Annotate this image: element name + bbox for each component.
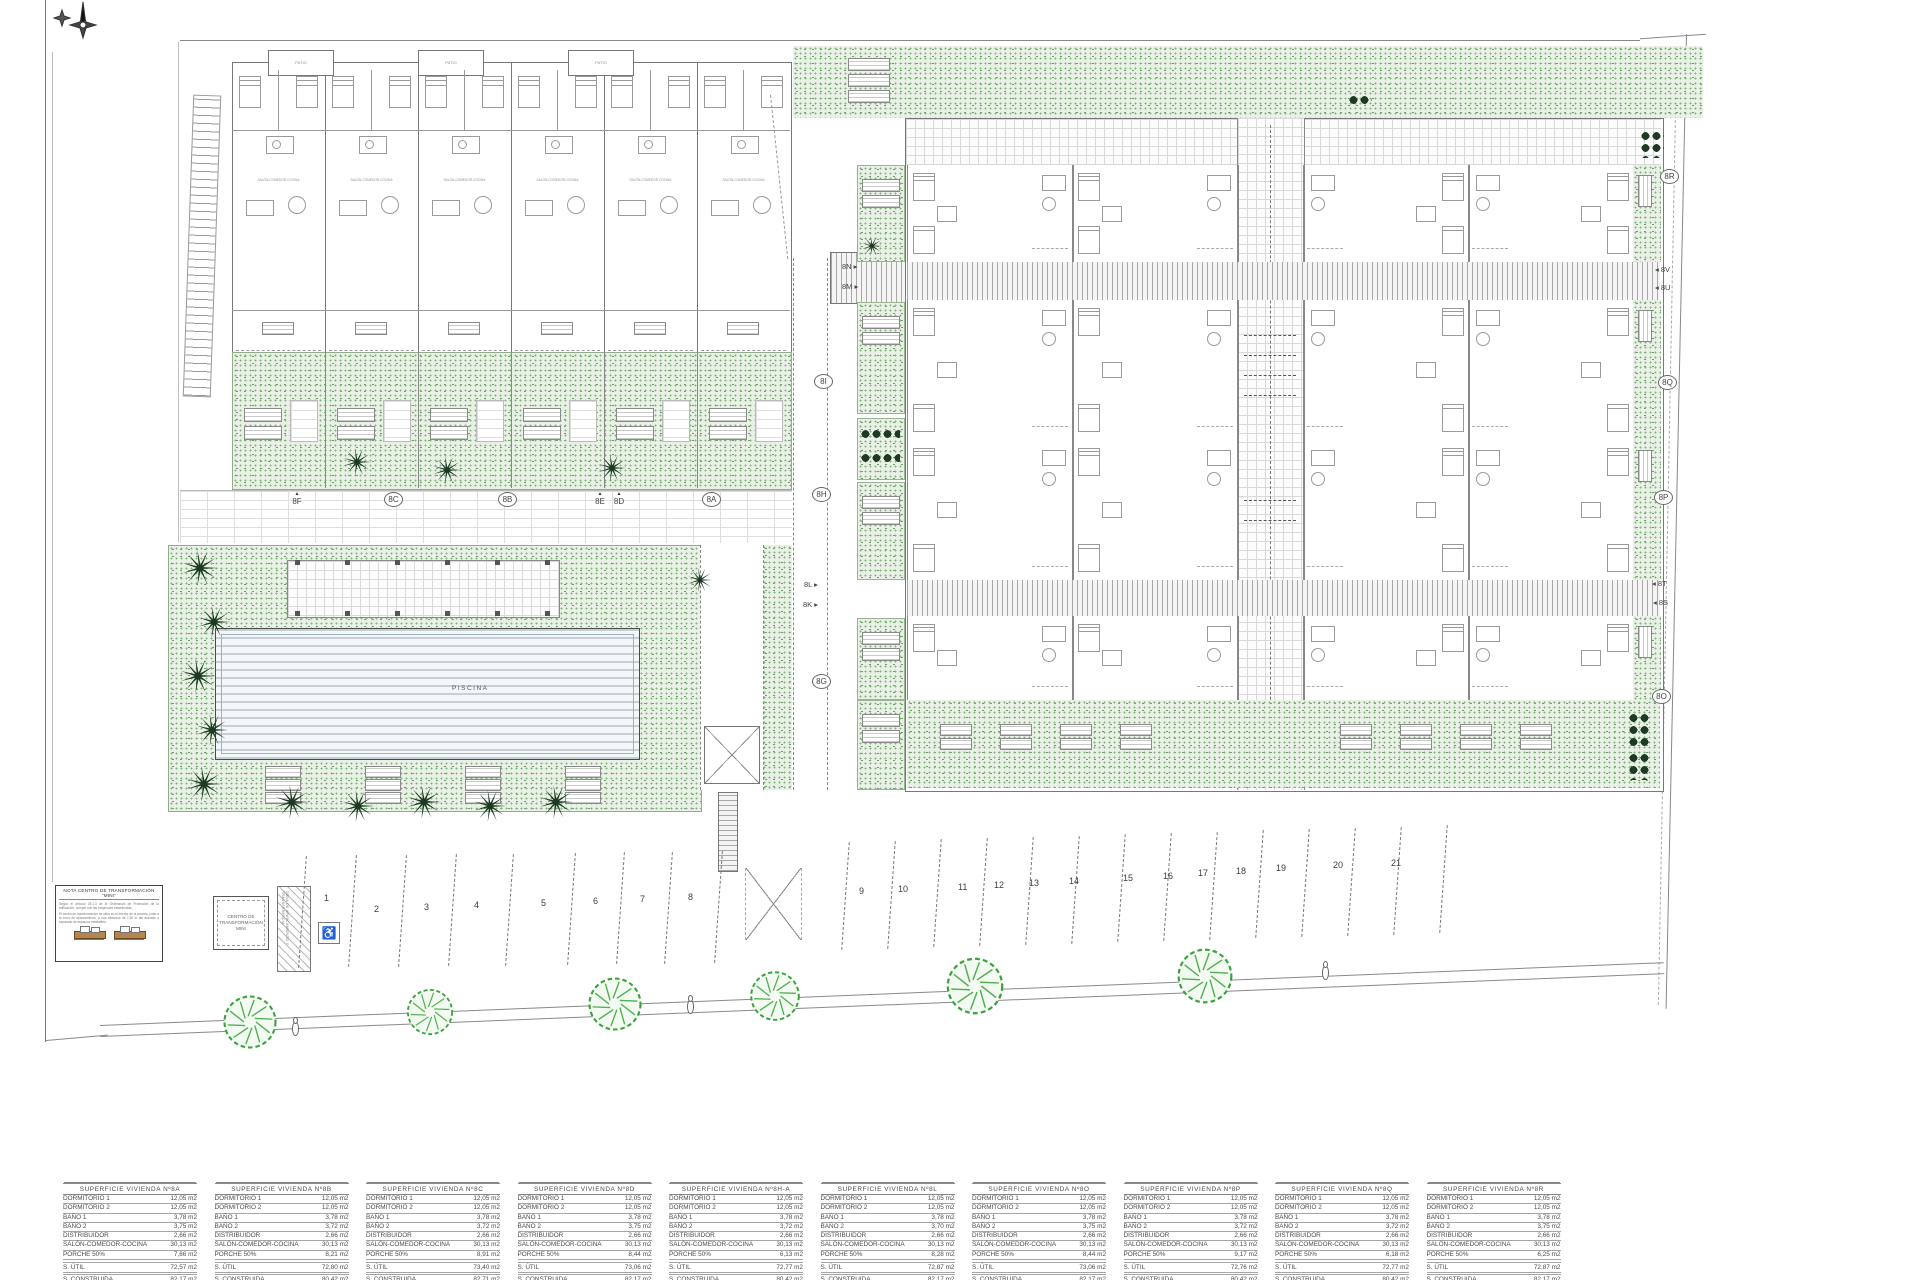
area-table-row: BAÑO 23,72 m2 (669, 1223, 803, 1232)
area-row-label: BAÑO 1 (1427, 1214, 1450, 1222)
area-row-value: 3,72 m2 (780, 1223, 803, 1231)
area-row-label: SALÓN-COMEDOR-COCINA (518, 1241, 602, 1249)
porch-edge (329, 350, 414, 351)
area-row-value: 72,80 m2 (322, 1263, 349, 1272)
area-table-row: S. ÚTIL72,57 m2 (63, 1262, 197, 1273)
living-room-label: SALÓN-COMEDOR-COCINA (238, 168, 319, 176)
garden-lounger (616, 426, 654, 440)
unit-label-8G: 8G (812, 674, 831, 689)
porch-lounger (448, 322, 480, 335)
bathroom (937, 502, 957, 518)
area-table-row: DORMITORIO 112,05 m2 (215, 1195, 349, 1204)
area-row-value: 82,17 m2 (625, 1275, 652, 1280)
sofa (1207, 450, 1231, 466)
area-row-value: 12,05 m2 (1231, 1195, 1258, 1203)
porch-wall (418, 310, 511, 311)
central-spine (1237, 118, 1305, 790)
rowhouse-divider (511, 62, 512, 352)
area-table-row: PORCHE 50%8,44 m2 (518, 1251, 652, 1260)
area-row-label: BAÑO 1 (1124, 1214, 1147, 1222)
west-lounger (862, 332, 900, 345)
salon-label: SALÓN-COMEDOR-COCINA (258, 178, 300, 182)
area-row-value: 3,78 m2 (780, 1214, 803, 1222)
parking-divider (1347, 828, 1356, 936)
interior-wall (511, 130, 604, 131)
porch-lounger (634, 322, 666, 335)
parking-divider (933, 840, 942, 948)
area-row-value: 12,05 m2 (776, 1204, 803, 1212)
bed-pillow (913, 451, 935, 456)
area-row-label: DISTRIBUIDOR (972, 1232, 1018, 1240)
boundary-top (180, 40, 1640, 41)
parking-number: 15 (1123, 873, 1133, 883)
street-tree-icon (747, 968, 803, 1024)
bed-pillow (913, 627, 935, 632)
area-row-label: S. CONSTRUIDA (972, 1275, 1022, 1280)
area-row-label: DORMITORIO 2 (215, 1204, 262, 1212)
area-row-value: 3,78 m2 (1386, 1214, 1409, 1222)
right-garden-lounger (1638, 450, 1652, 482)
area-row-label: DORMITORIO 2 (821, 1204, 868, 1212)
ramp (745, 868, 802, 940)
area-table-row: S. CONSTRUIDA82,17 m2 (972, 1274, 1106, 1280)
area-table-row: S. CONSTRUIDA80,42 m2 (669, 1274, 803, 1280)
sofa (1042, 310, 1066, 326)
area-table-row: S. ÚTIL72,87 m2 (1427, 1262, 1561, 1273)
area-table-row: S. CONSTRUIDA80,42 m2 (1275, 1274, 1409, 1280)
area-row-label: S. ÚTIL (366, 1263, 388, 1272)
front-walkway (180, 490, 792, 543)
table (1476, 197, 1490, 211)
salon-label: SALÓN-COMEDOR-COCINA (537, 178, 579, 182)
terrace-edge (1032, 686, 1068, 687)
area-table-row: BAÑO 23,72 m2 (366, 1223, 500, 1232)
area-row-label: SALÓN-COMEDOR-COCINA (1427, 1241, 1511, 1249)
bed-pillow (913, 404, 935, 409)
garden-lounger (337, 408, 375, 422)
area-table-row: PORCHE 50%7,66 m2 (63, 1251, 197, 1260)
area-table-title: SUPERFICIE VIVIENDA Nº8A (63, 1183, 197, 1195)
bedroom-wall (371, 70, 372, 130)
area-row-value: 8,44 m2 (628, 1251, 651, 1259)
south-lounger (1000, 724, 1032, 736)
terrace-edge (1032, 566, 1068, 567)
area-table-row: S. ÚTIL72,77 m2 (1275, 1262, 1409, 1273)
west-lounger (862, 714, 900, 727)
parking-divider (1025, 837, 1034, 945)
spine-section-mark (1244, 355, 1296, 356)
area-table-row: BAÑO 13,78 m2 (1427, 1214, 1561, 1223)
parking-divider (1163, 833, 1172, 941)
area-table-row: BAÑO 23,75 m2 (518, 1223, 652, 1232)
bed-pillow (1607, 311, 1629, 316)
garden-lounger (430, 408, 468, 422)
area-table-row: S. ÚTIL73,06 m2 (518, 1262, 652, 1273)
parking-number: 18 (1236, 866, 1246, 876)
area-row-value: 12,05 m2 (1382, 1195, 1409, 1203)
area-row-value: 82,17 m2 (1079, 1275, 1106, 1280)
area-table-row: PORCHE 50%8,44 m2 (972, 1251, 1106, 1260)
table (1207, 197, 1221, 211)
south-lounger (1400, 738, 1432, 750)
west-lounger (862, 632, 900, 645)
garden-pad (290, 400, 318, 442)
bed-pillow (1078, 311, 1100, 316)
area-row-value: 12,05 m2 (625, 1195, 652, 1203)
garden-pad (383, 400, 411, 442)
area-row-value: 30,13 m2 (928, 1241, 955, 1249)
bed-pillow (1607, 627, 1629, 632)
bedroom-wall (557, 70, 558, 130)
area-table-row: DORMITORIO 112,05 m2 (1427, 1195, 1561, 1204)
area-row-label: DORMITORIO 1 (366, 1195, 413, 1203)
area-row-value: 80,42 m2 (776, 1275, 803, 1280)
west-lounger (862, 730, 900, 743)
area-table-row: DORMITORIO 112,05 m2 (518, 1195, 652, 1204)
parking-number: 19 (1276, 863, 1286, 873)
area-table-row: S. CONSTRUIDA82,71 m2 (366, 1274, 500, 1280)
area-row-value: 72,87 m2 (1534, 1263, 1561, 1272)
south-lounger (1460, 738, 1492, 750)
interior-wall (232, 130, 325, 131)
garden-lounger (337, 426, 375, 440)
rowhouse-divider (325, 62, 326, 352)
area-row-value: 72,57 m2 (170, 1263, 197, 1272)
toilet (272, 140, 281, 149)
terrace-edge (1032, 426, 1068, 427)
area-row-label: S. CONSTRUIDA (821, 1275, 871, 1280)
area-row-value: 3,75 m2 (1083, 1223, 1106, 1231)
bollard-icon (687, 1000, 694, 1014)
area-table: SUPERFICIE VIVIENDA Nº8H-ADORMITORIO 112… (669, 1183, 803, 1280)
unit-label-text: 8D (614, 497, 624, 506)
area-table-row: DORMITORIO 212,05 m2 (1275, 1204, 1409, 1213)
pergola-column (345, 611, 350, 616)
area-row-value: 3,75 m2 (174, 1223, 197, 1231)
boundary-left-inner (52, 52, 53, 882)
unit-label-8O: 8O (1652, 689, 1671, 704)
table (1042, 648, 1056, 662)
bed-pillow (1442, 627, 1464, 632)
area-row-value: 8,21 m2 (325, 1251, 348, 1259)
unit-label-8E: 8E (592, 492, 608, 506)
parking-divider (448, 854, 457, 966)
area-row-value: 12,05 m2 (1382, 1204, 1409, 1212)
area-row-label: BAÑO 2 (63, 1223, 86, 1231)
bollard-icon (688, 995, 693, 1002)
garden-lounger (523, 408, 561, 422)
area-row-label: DISTRIBUIDOR (366, 1232, 412, 1240)
area-table-row: BAÑO 13,78 m2 (63, 1214, 197, 1223)
living-room-label: SALÓN-COMEDOR-COCINA (424, 168, 505, 176)
garden-divider (697, 352, 698, 488)
area-row-label: S. ÚTIL (518, 1263, 540, 1272)
dining-table (288, 196, 306, 214)
parking-divider (1439, 825, 1448, 933)
area-row-label: S. ÚTIL (972, 1263, 994, 1272)
unit-label-8L: 8L ▸ (804, 580, 818, 589)
sofa (1042, 175, 1066, 191)
terrace-edge (1307, 426, 1343, 427)
unit-label-8Q: 8Q (1658, 375, 1677, 390)
area-table-row: BAÑO 23,75 m2 (1427, 1223, 1561, 1232)
area-row-value: 2,66 m2 (1234, 1232, 1257, 1240)
toilet (365, 140, 374, 149)
area-row-label: DORMITORIO 1 (972, 1195, 1019, 1203)
garden-lounger (709, 426, 747, 440)
pool-lounger (465, 766, 501, 778)
porch-wall (511, 310, 604, 311)
bed-pillow (611, 80, 633, 86)
area-row-value: 3,78 m2 (1537, 1214, 1560, 1222)
north-garden-band (793, 46, 1703, 118)
porch-lounger (262, 322, 294, 335)
area-row-value: 2,66 m2 (780, 1232, 803, 1240)
spine-section-mark (1244, 520, 1296, 521)
table (1311, 197, 1325, 211)
parking-divider (616, 852, 625, 964)
garden-pad (569, 400, 597, 442)
parking-divider (1255, 831, 1264, 939)
area-row-label: PORCHE 50% (1275, 1251, 1317, 1259)
bathroom (1416, 362, 1436, 378)
dining-table (474, 196, 492, 214)
area-row-value: 30,13 m2 (473, 1241, 500, 1249)
bed-pillow (482, 80, 504, 86)
area-table-row: BAÑO 23,72 m2 (215, 1223, 349, 1232)
area-row-value: 30,13 m2 (322, 1241, 349, 1249)
parking-divider (298, 856, 307, 968)
area-row-label: DORMITORIO 1 (1124, 1195, 1171, 1203)
west-lounger (862, 496, 900, 509)
table (1311, 648, 1325, 662)
area-row-value: 72,77 m2 (776, 1263, 803, 1272)
palm-tree-icon (687, 567, 713, 593)
bathroom (1581, 362, 1601, 378)
palm-tree-icon (274, 784, 310, 820)
parking-divider (348, 855, 357, 967)
bedroom-wall (743, 70, 744, 130)
palm-tree-icon (181, 549, 219, 587)
area-table-row: SALÓN-COMEDOR-COCINA30,13 m2 (366, 1241, 500, 1250)
area-row-label: DORMITORIO 1 (1275, 1195, 1322, 1203)
sofa (1311, 175, 1335, 191)
area-row-label: DORMITORIO 2 (1427, 1204, 1474, 1212)
area-row-label: PORCHE 50% (972, 1251, 1014, 1259)
area-row-label: DISTRIBUIDOR (63, 1232, 109, 1240)
area-table-row: PORCHE 50%8,21 m2 (215, 1251, 349, 1260)
parking-number: 5 (541, 898, 546, 908)
bed-pillow (1442, 176, 1464, 181)
area-table-row: DORMITORIO 212,05 m2 (821, 1204, 955, 1213)
area-row-label: BAÑO 2 (669, 1223, 692, 1231)
area-row-label: S. ÚTIL (669, 1263, 691, 1272)
area-row-value: 72,77 m2 (1382, 1263, 1409, 1272)
spine-section-mark (1244, 335, 1296, 336)
garden-lounger (244, 426, 282, 440)
unit-label-8R: 8R (1660, 169, 1679, 184)
bed-pillow (332, 80, 354, 86)
bollard-icon (1323, 961, 1328, 968)
area-row-value: 12,05 m2 (1534, 1195, 1561, 1203)
area-row-value: 7,66 m2 (174, 1251, 197, 1259)
area-table-row: BAÑO 13,78 m2 (972, 1214, 1106, 1223)
palm-tree-icon (861, 235, 883, 257)
south-lounger (1060, 724, 1092, 736)
garden-divider (511, 352, 512, 488)
terrace-edge (1197, 426, 1233, 427)
area-table: SUPERFICIE VIVIENDA Nº8RDORMITORIO 112,0… (1427, 1183, 1561, 1280)
parking-divider (1301, 829, 1310, 937)
bathroom (1416, 650, 1436, 666)
bed-pillow (761, 80, 783, 86)
palm-tree-icon (406, 784, 442, 820)
porch-wall (604, 310, 697, 311)
garden-lounger (709, 408, 747, 422)
bathroom (1581, 206, 1601, 222)
patio: PATIO (568, 50, 634, 76)
area-table-row: DORMITORIO 212,05 m2 (1124, 1204, 1258, 1213)
area-row-value: 73,40 m2 (473, 1263, 500, 1272)
area-table-row: PORCHE 50%6,18 m2 (1275, 1251, 1409, 1260)
area-table-row: PORCHE 50%8,28 m2 (821, 1251, 955, 1260)
porch-edge (515, 350, 600, 351)
area-row-label: S. ÚTIL (215, 1263, 237, 1272)
porch-wall (325, 310, 418, 311)
area-row-label: DORMITORIO 2 (972, 1204, 1019, 1212)
unit-label-8K: 8K ▸ (803, 600, 818, 609)
area-row-label: BAÑO 2 (215, 1223, 238, 1231)
porch-wall (697, 310, 790, 311)
area-row-value: 2,66 m2 (174, 1232, 197, 1240)
west-lounger (862, 195, 900, 208)
interior-wall (325, 130, 418, 131)
salon-label: SALÓN-COMEDOR-COCINA (444, 178, 486, 182)
bed-pillow (1442, 404, 1464, 409)
parking-number: 9 (859, 886, 864, 896)
garden-divider (418, 352, 419, 488)
bathroom (937, 650, 957, 666)
bed-pillow (575, 80, 597, 86)
area-row-label: BAÑO 1 (972, 1214, 995, 1222)
parking-number: 21 (1391, 858, 1401, 868)
area-table-row: S. CONSTRUIDA82,17 m2 (518, 1274, 652, 1280)
bathroom (1102, 502, 1122, 518)
bush-row (860, 452, 900, 466)
spine-section-mark (1244, 395, 1296, 396)
sofa (1042, 626, 1066, 642)
porch-edge (422, 350, 507, 351)
pool-pergola (287, 560, 560, 618)
area-row-label: BAÑO 1 (63, 1214, 86, 1222)
pool-lounger (265, 766, 301, 778)
west-lounger (862, 648, 900, 661)
area-table-row: DORMITORIO 212,05 m2 (215, 1204, 349, 1213)
area-row-label: DISTRIBUIDOR (669, 1232, 715, 1240)
bed-pillow (1078, 451, 1100, 456)
pergola-column (395, 611, 400, 616)
area-row-value: 12,05 m2 (170, 1195, 197, 1203)
area-table-row: S. CONSTRUIDA80,42 m2 (215, 1274, 349, 1280)
area-table-row: DORMITORIO 212,05 m2 (63, 1204, 197, 1213)
area-row-value: 8,44 m2 (1083, 1251, 1106, 1259)
parking-number: 13 (1029, 878, 1039, 888)
area-table-row: BAÑO 13,78 m2 (1275, 1214, 1409, 1223)
dining-table (660, 196, 678, 214)
patio-label: PATIO (595, 61, 606, 65)
bathroom (937, 206, 957, 222)
area-row-label: BAÑO 1 (669, 1214, 692, 1222)
sofa (1476, 626, 1500, 642)
sofa (1207, 310, 1231, 326)
area-row-label: BAÑO 1 (1275, 1214, 1298, 1222)
area-table-title: SUPERFICIE VIVIENDA Nº8C (366, 1183, 500, 1195)
garden-pad (476, 400, 504, 442)
area-row-label: BAÑO 1 (518, 1214, 541, 1222)
palm-tree-icon (341, 789, 375, 823)
parking-divider (1393, 827, 1402, 935)
bed-pillow (668, 80, 690, 86)
area-row-value: 2,66 m2 (325, 1232, 348, 1240)
area-row-label: DORMITORIO 2 (518, 1204, 565, 1212)
bed-pillow (518, 80, 540, 86)
bathroom (1416, 206, 1436, 222)
area-table-row: SALÓN-COMEDOR-COCINA30,13 m2 (669, 1241, 803, 1250)
area-row-label: BAÑO 2 (1427, 1223, 1450, 1231)
area-table-row: BAÑO 13,78 m2 (366, 1214, 500, 1223)
bedroom-wall (464, 70, 465, 130)
sofa (1311, 626, 1335, 642)
parking-number: 11 (958, 882, 967, 892)
table (1476, 648, 1490, 662)
area-row-value: 30,13 m2 (1231, 1241, 1258, 1249)
living-room-label: SALÓN-COMEDOR-COCINA (703, 168, 784, 176)
bed-pillow (425, 80, 447, 86)
area-table-title: SUPERFICIE VIVIENDA Nº8R (1427, 1183, 1561, 1195)
sofa (618, 200, 646, 216)
parking-number: 14 (1069, 876, 1079, 886)
table (1311, 332, 1325, 346)
table (1476, 332, 1490, 346)
area-row-label: BAÑO 2 (366, 1223, 389, 1231)
bed-pillow (1442, 311, 1464, 316)
palm-tree-icon (342, 447, 372, 477)
area-row-label: PORCHE 50% (215, 1251, 257, 1259)
parking-number: 6 (593, 896, 598, 906)
area-row-label: S. ÚTIL (1427, 1263, 1449, 1272)
patio: PATIO (418, 50, 484, 76)
area-table-title: SUPERFICIE VIVIENDA Nº8B (215, 1183, 349, 1195)
bed-pillow (913, 311, 935, 316)
area-row-label: S. CONSTRUIDA (1427, 1275, 1477, 1280)
area-table-row: PORCHE 50%6,13 m2 (669, 1251, 803, 1260)
sofa (1311, 450, 1335, 466)
right-garden-lounger (1638, 626, 1652, 658)
north-lounger (848, 90, 890, 103)
area-table-row: S. ÚTIL72,80 m2 (215, 1262, 349, 1273)
area-table-title: SUPERFICIE VIVIENDA Nº8L (821, 1183, 955, 1195)
area-table-row: SALÓN-COMEDOR-COCINA30,13 m2 (1124, 1241, 1258, 1250)
area-row-value: 3,78 m2 (174, 1214, 197, 1222)
area-row-label: SALÓN-COMEDOR-COCINA (366, 1241, 450, 1249)
area-row-label: DORMITORIO 1 (821, 1195, 868, 1203)
bed-pillow (1078, 627, 1100, 632)
area-row-label: S. CONSTRUIDA (518, 1275, 568, 1280)
area-table-row: BAÑO 13,78 m2 (821, 1214, 955, 1223)
sofa (1476, 175, 1500, 191)
area-row-value: 2,66 m2 (1537, 1232, 1560, 1240)
area-table-row: SALÓN-COMEDOR-COCINA30,13 m2 (63, 1241, 197, 1250)
